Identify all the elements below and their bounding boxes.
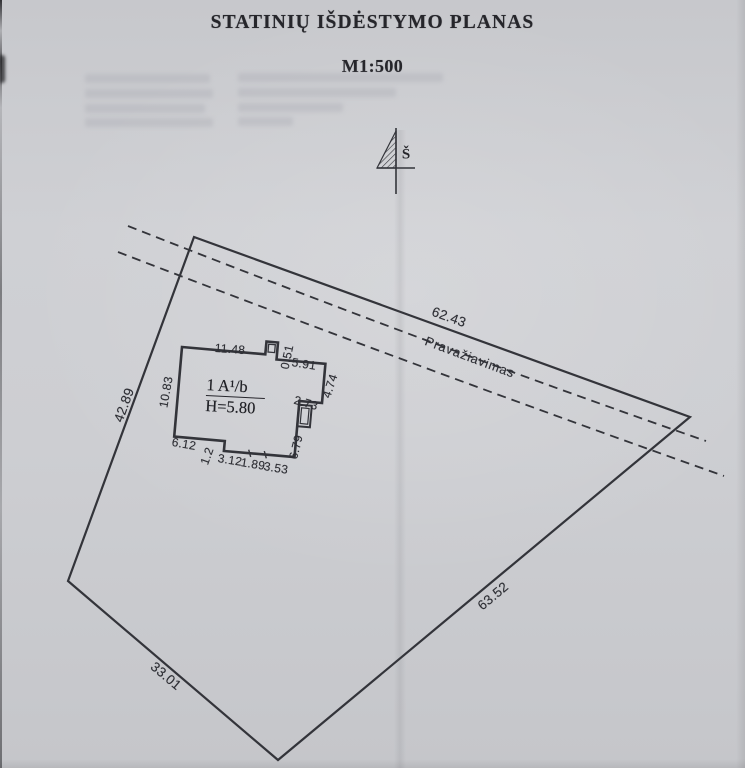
site-plan-drawing (0, 0, 745, 768)
scan-edge-spot (0, 55, 5, 83)
road-edge-line (118, 252, 724, 476)
building-porch-top-inner (268, 344, 275, 352)
scan-edge-right (736, 0, 745, 768)
building-height-label: H=5.80 (205, 396, 265, 418)
building-designation-code: 1 A¹/b (206, 375, 266, 399)
scanned-site-plan-page: STATINIŲ IŠDĖSTYMO PLANAS M1:500 (0, 0, 745, 768)
scan-edge-bottom (0, 759, 745, 768)
paper-fold-line (394, 130, 406, 768)
scan-edge-left (0, 0, 2, 768)
building-dim-top: 11.48 (214, 341, 246, 357)
building-designation: 1 A¹/b H=5.80 (205, 375, 266, 418)
